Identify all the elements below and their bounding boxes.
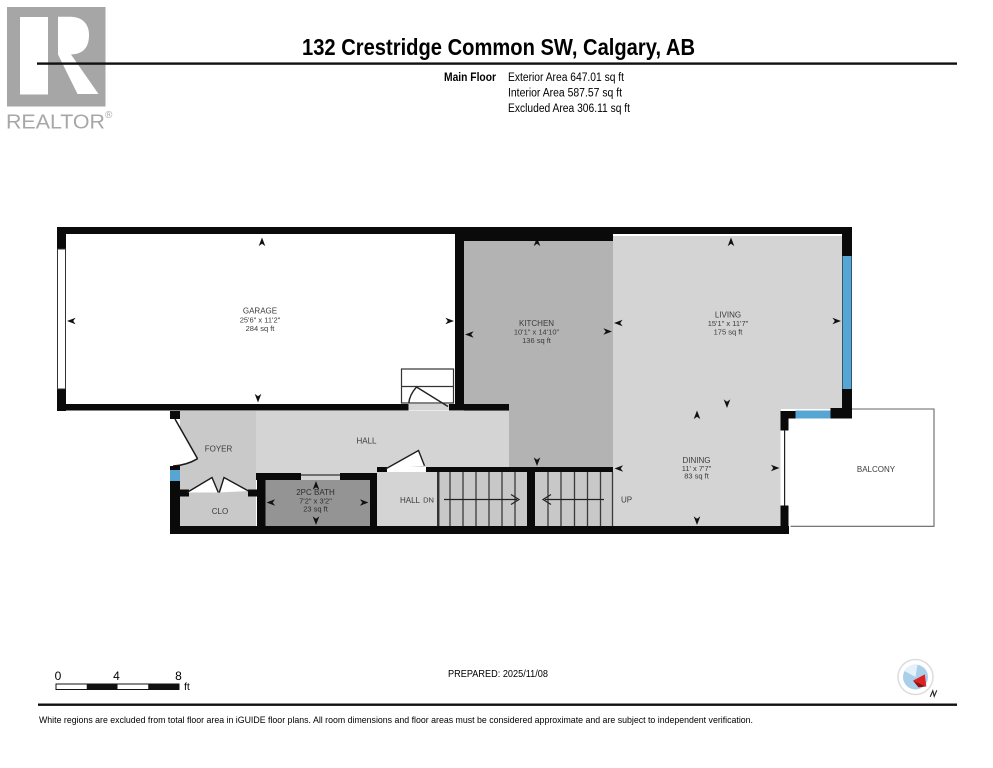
svg-text:284 sq ft: 284 sq ft — [246, 324, 276, 333]
svg-text:BALCONY: BALCONY — [857, 465, 896, 474]
svg-text:Main Floor: Main Floor — [444, 72, 496, 84]
svg-text:83 sq ft: 83 sq ft — [684, 471, 710, 480]
svg-text:DN: DN — [423, 495, 434, 504]
svg-text:HALL: HALL — [356, 437, 377, 446]
svg-text:PREPARED: 2025/11/08: PREPARED: 2025/11/08 — [448, 668, 548, 680]
svg-text:ft: ft — [184, 681, 190, 693]
svg-text:HALL: HALL — [400, 496, 421, 505]
svg-text:8: 8 — [175, 669, 182, 683]
svg-text:FOYER: FOYER — [205, 445, 233, 454]
svg-text:Exterior Area 647.01 sq ft: Exterior Area 647.01 sq ft — [508, 72, 625, 84]
svg-text:0: 0 — [55, 669, 62, 683]
svg-text:175 sq ft: 175 sq ft — [714, 327, 744, 336]
svg-text:White regions are excluded fro: White regions are excluded from total fl… — [39, 715, 753, 725]
svg-text:®: ® — [105, 110, 113, 121]
svg-text:132 Crestridge Common SW, Calg: 132 Crestridge Common SW, Calgary, AB — [302, 34, 695, 60]
svg-text:23 sq ft: 23 sq ft — [303, 505, 329, 514]
svg-text:Interior Area 587.57 sq ft: Interior Area 587.57 sq ft — [508, 88, 623, 100]
svg-text:CLO: CLO — [212, 507, 228, 516]
svg-text:4: 4 — [113, 669, 120, 683]
svg-text:UP: UP — [621, 496, 632, 505]
svg-text:136 sq ft: 136 sq ft — [522, 336, 552, 345]
svg-text:GARAGE: GARAGE — [243, 307, 277, 316]
svg-text:Excluded Area 306.11 sq ft: Excluded Area 306.11 sq ft — [508, 103, 631, 115]
svg-text:REALTOR: REALTOR — [6, 112, 105, 134]
